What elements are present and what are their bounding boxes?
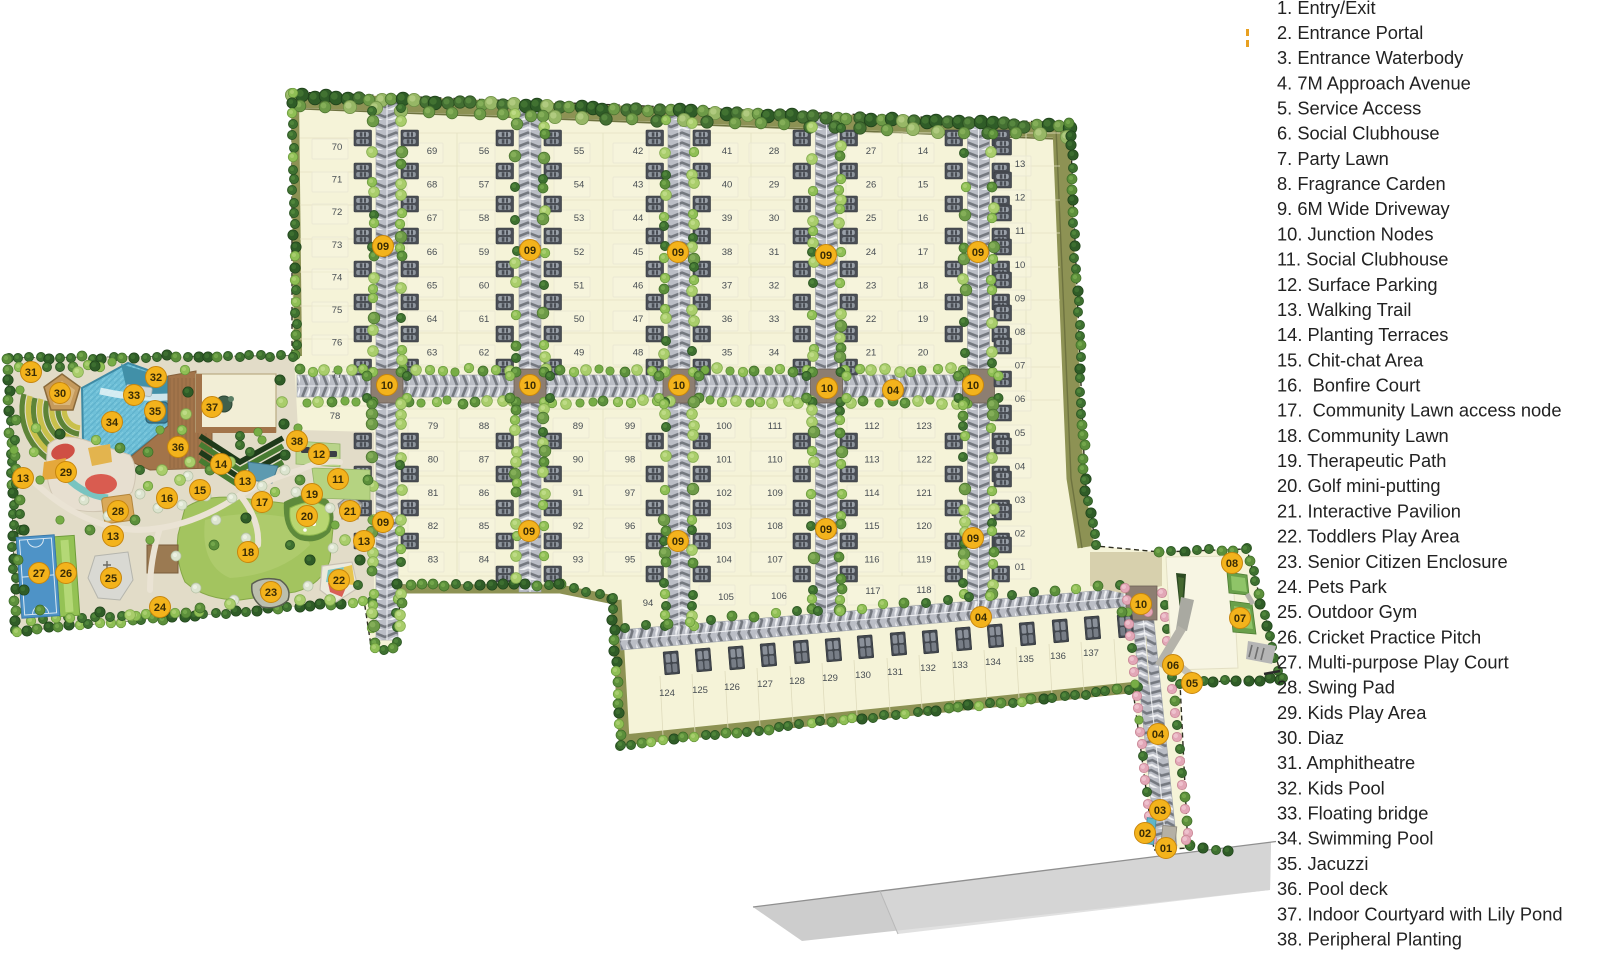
svg-text:27: 27 — [33, 568, 45, 580]
svg-text:11: 11 — [332, 474, 344, 486]
svg-text:10: 10 — [673, 380, 685, 392]
svg-text:129: 129 — [822, 673, 838, 684]
svg-text:72: 72 — [332, 207, 343, 218]
svg-text:15. Chit-chat Area: 15. Chit-chat Area — [1277, 349, 1424, 370]
svg-text:12: 12 — [1015, 193, 1026, 204]
svg-text:80: 80 — [428, 454, 439, 465]
svg-text:34: 34 — [106, 417, 119, 429]
svg-text:1. Entry/Exit: 1. Entry/Exit — [1277, 0, 1376, 18]
svg-text:39: 39 — [722, 213, 733, 224]
svg-text:27. Multi-purpose Play Court: 27. Multi-purpose Play Court — [1277, 652, 1509, 673]
svg-text:109: 109 — [767, 488, 783, 499]
svg-text:18: 18 — [242, 547, 254, 559]
svg-text:24: 24 — [154, 602, 167, 614]
svg-text:8. Fragrance Carden: 8. Fragrance Carden — [1277, 173, 1446, 194]
svg-text:18: 18 — [918, 280, 929, 291]
svg-text:38: 38 — [722, 247, 733, 258]
svg-text:23: 23 — [866, 280, 877, 291]
svg-text:130: 130 — [855, 670, 871, 681]
svg-text:36: 36 — [722, 314, 733, 325]
svg-text:18. Community Lawn: 18. Community Lawn — [1277, 425, 1449, 446]
svg-text:119: 119 — [916, 555, 931, 566]
svg-text:47: 47 — [633, 314, 644, 325]
svg-text:127: 127 — [757, 679, 773, 690]
svg-text:20: 20 — [918, 348, 929, 359]
svg-text:09: 09 — [672, 536, 684, 548]
svg-text:51: 51 — [574, 280, 585, 291]
svg-text:125: 125 — [692, 685, 708, 696]
svg-text:10: 10 — [1015, 260, 1026, 271]
svg-text:13: 13 — [1015, 159, 1026, 170]
svg-text:14: 14 — [215, 459, 228, 471]
svg-text:6. Social Clubhouse: 6. Social Clubhouse — [1277, 123, 1440, 144]
svg-text:79: 79 — [428, 421, 439, 432]
svg-text:2. Entrance Portal: 2. Entrance Portal — [1277, 22, 1423, 43]
svg-text:103: 103 — [716, 521, 732, 532]
svg-text:20. Golf mini-putting: 20. Golf mini-putting — [1277, 475, 1441, 496]
svg-text:114: 114 — [864, 488, 879, 499]
svg-text:65: 65 — [427, 280, 438, 291]
svg-text:87: 87 — [479, 454, 490, 465]
svg-text:133: 133 — [952, 660, 968, 671]
svg-text:86: 86 — [479, 488, 490, 499]
svg-text:4. 7M Approach Avenue: 4. 7M Approach Avenue — [1277, 72, 1471, 93]
svg-text:26: 26 — [866, 180, 877, 191]
svg-text:34. Swimming Pool: 34. Swimming Pool — [1277, 828, 1433, 849]
svg-text:30: 30 — [54, 388, 66, 400]
svg-text:132: 132 — [920, 663, 936, 674]
svg-text:08: 08 — [1226, 558, 1238, 570]
svg-text:128: 128 — [789, 676, 805, 687]
svg-text:17: 17 — [918, 247, 929, 258]
svg-text:12: 12 — [313, 449, 325, 461]
svg-text:76: 76 — [332, 338, 343, 349]
svg-text:33: 33 — [128, 390, 140, 402]
svg-text:97: 97 — [625, 488, 636, 499]
svg-text:32: 32 — [150, 372, 162, 384]
svg-text:15: 15 — [194, 485, 206, 497]
svg-text:49: 49 — [574, 348, 585, 359]
svg-text:37: 37 — [206, 402, 218, 414]
svg-text:101: 101 — [716, 454, 732, 465]
svg-text:81: 81 — [428, 488, 439, 499]
svg-text:63: 63 — [427, 348, 438, 359]
svg-text:24. Pets Park: 24. Pets Park — [1277, 576, 1388, 597]
svg-text:09: 09 — [523, 526, 535, 538]
svg-text:92: 92 — [573, 521, 584, 532]
svg-text:57: 57 — [479, 180, 490, 191]
svg-text:45: 45 — [633, 247, 644, 258]
svg-text:61: 61 — [479, 314, 490, 325]
svg-text:41: 41 — [722, 146, 733, 157]
svg-text:36: 36 — [172, 442, 184, 454]
svg-text:112: 112 — [864, 421, 879, 432]
svg-text:110: 110 — [767, 454, 782, 465]
svg-text:58: 58 — [479, 213, 490, 224]
svg-text:121: 121 — [916, 488, 932, 499]
svg-text:71: 71 — [332, 175, 343, 186]
svg-text:16: 16 — [918, 213, 929, 224]
svg-text:113: 113 — [864, 454, 879, 465]
svg-text:24: 24 — [866, 247, 877, 258]
svg-text:42: 42 — [633, 146, 644, 157]
svg-text:08: 08 — [1015, 327, 1026, 338]
svg-text:32. Kids Pool: 32. Kids Pool — [1277, 777, 1385, 798]
svg-text:16: 16 — [161, 493, 173, 505]
svg-text:21. Interactive Pavilion: 21. Interactive Pavilion — [1277, 500, 1461, 521]
svg-text:35: 35 — [722, 348, 733, 359]
svg-text:09: 09 — [524, 245, 536, 257]
svg-text:124: 124 — [659, 688, 675, 699]
svg-text:29: 29 — [60, 467, 72, 479]
svg-text:83: 83 — [428, 555, 439, 566]
svg-text:135: 135 — [1018, 654, 1034, 665]
svg-text:23: 23 — [265, 587, 277, 599]
svg-text:68: 68 — [427, 180, 438, 191]
svg-text:17: 17 — [256, 497, 268, 509]
svg-text:137: 137 — [1083, 648, 1099, 659]
svg-text:09: 09 — [967, 533, 979, 545]
svg-text:11. Social Clubhouse: 11. Social Clubhouse — [1277, 249, 1448, 270]
svg-text:118: 118 — [916, 585, 931, 596]
svg-text:31: 31 — [25, 367, 37, 379]
svg-text:28. Swing Pad: 28. Swing Pad — [1277, 677, 1395, 698]
svg-text:88: 88 — [479, 421, 490, 432]
svg-text:105: 105 — [718, 592, 734, 603]
svg-text:38. Peripheral Planting: 38. Peripheral Planting — [1277, 929, 1462, 950]
svg-text:94: 94 — [643, 598, 654, 609]
svg-text:19. Therapeutic Path: 19. Therapeutic Path — [1277, 450, 1446, 471]
svg-text:78: 78 — [330, 411, 341, 422]
svg-text:99: 99 — [625, 421, 636, 432]
svg-text:09: 09 — [972, 247, 984, 259]
svg-text:10: 10 — [967, 380, 979, 392]
svg-text:106: 106 — [771, 591, 787, 602]
svg-text:40: 40 — [722, 180, 733, 191]
svg-text:131: 131 — [887, 667, 903, 678]
svg-text:104: 104 — [716, 555, 732, 566]
svg-text:55: 55 — [574, 146, 585, 157]
svg-text:85: 85 — [479, 521, 490, 532]
svg-text:05: 05 — [1015, 428, 1026, 439]
svg-text:04: 04 — [975, 612, 988, 624]
svg-text:07: 07 — [1234, 613, 1246, 625]
svg-text:84: 84 — [479, 555, 490, 566]
svg-text:56: 56 — [479, 146, 490, 157]
svg-text:107: 107 — [767, 555, 783, 566]
svg-text:74: 74 — [332, 272, 343, 283]
svg-text:13: 13 — [239, 476, 251, 488]
svg-text:123: 123 — [916, 421, 932, 432]
svg-text:14. Planting Terraces: 14. Planting Terraces — [1277, 324, 1448, 345]
svg-text:19: 19 — [918, 314, 929, 325]
svg-text:25: 25 — [105, 573, 117, 585]
svg-text:22: 22 — [866, 314, 877, 325]
svg-text:35. Jacuzzi: 35. Jacuzzi — [1277, 853, 1368, 874]
svg-text:03: 03 — [1015, 495, 1026, 506]
svg-text:29. Kids Play Area: 29. Kids Play Area — [1277, 702, 1427, 723]
svg-text:25: 25 — [866, 213, 877, 224]
svg-text:7. Party Lawn: 7. Party Lawn — [1277, 148, 1389, 169]
svg-text:02: 02 — [1139, 828, 1151, 840]
svg-text:01: 01 — [1160, 843, 1172, 855]
svg-text:13: 13 — [17, 473, 29, 485]
svg-text:117: 117 — [865, 586, 880, 597]
svg-text:32: 32 — [769, 280, 780, 291]
svg-text:05: 05 — [1186, 678, 1198, 690]
svg-text:115: 115 — [864, 521, 879, 532]
svg-text:16. Bonfire Court: 16. Bonfire Court — [1277, 375, 1420, 396]
svg-text:67: 67 — [427, 213, 438, 224]
svg-text:70: 70 — [332, 142, 343, 153]
svg-text:21: 21 — [866, 348, 877, 359]
svg-text:5. Service Access: 5. Service Access — [1277, 98, 1421, 119]
svg-text:91: 91 — [573, 488, 584, 499]
svg-text:89: 89 — [573, 421, 584, 432]
svg-text:19: 19 — [306, 489, 318, 501]
svg-text:62: 62 — [479, 348, 490, 359]
svg-text:30: 30 — [769, 213, 780, 224]
svg-text:60: 60 — [479, 280, 490, 291]
svg-text:34: 34 — [769, 348, 780, 359]
svg-text:50: 50 — [574, 314, 585, 325]
svg-text:100: 100 — [716, 421, 732, 432]
svg-text:17. Community Lawn access nod: 17. Community Lawn access node — [1277, 400, 1562, 421]
svg-text:33: 33 — [769, 314, 780, 325]
svg-text:122: 122 — [916, 454, 932, 465]
svg-text:09: 09 — [377, 517, 389, 529]
svg-text:12. Surface Parking: 12. Surface Parking — [1277, 274, 1438, 295]
svg-text:31. Amphitheatre: 31. Amphitheatre — [1277, 752, 1415, 773]
svg-text:04: 04 — [1015, 461, 1026, 472]
svg-text:13: 13 — [107, 531, 119, 543]
svg-text:04: 04 — [1152, 729, 1165, 741]
svg-text:95: 95 — [625, 555, 636, 566]
svg-text:66: 66 — [427, 247, 438, 258]
svg-text:120: 120 — [916, 521, 932, 532]
svg-text:136: 136 — [1050, 651, 1066, 662]
svg-text:75: 75 — [332, 305, 343, 316]
svg-text:09: 09 — [672, 247, 684, 259]
svg-text:03: 03 — [1154, 805, 1166, 817]
svg-text:52: 52 — [574, 247, 585, 258]
svg-text:111: 111 — [768, 421, 782, 432]
svg-text:10. Junction Nodes: 10. Junction Nodes — [1277, 223, 1434, 244]
svg-text:10: 10 — [381, 380, 393, 392]
svg-text:36. Pool deck: 36. Pool deck — [1277, 878, 1389, 899]
svg-text:73: 73 — [332, 240, 343, 251]
svg-text:09: 09 — [820, 524, 832, 536]
svg-text:54: 54 — [574, 180, 585, 191]
svg-text:102: 102 — [716, 488, 732, 499]
svg-text:07: 07 — [1015, 361, 1026, 372]
svg-text:13: 13 — [358, 536, 370, 548]
svg-text:134: 134 — [985, 657, 1001, 668]
svg-text:98: 98 — [625, 454, 636, 465]
svg-text:43: 43 — [633, 180, 644, 191]
svg-text:82: 82 — [428, 521, 439, 532]
svg-text:26: 26 — [60, 568, 72, 580]
svg-text:3. Entrance Waterbody: 3. Entrance Waterbody — [1277, 47, 1464, 68]
svg-text:28: 28 — [112, 506, 124, 518]
svg-text:59: 59 — [479, 247, 490, 258]
svg-text:93: 93 — [573, 555, 584, 566]
svg-text:23. Senior Citizen Enclosure: 23. Senior Citizen Enclosure — [1277, 551, 1508, 572]
svg-text:33. Floating bridge: 33. Floating bridge — [1277, 803, 1428, 824]
svg-text:26. Cricket Practice Pitch: 26. Cricket Practice Pitch — [1277, 626, 1481, 647]
svg-text:9. 6M Wide Driveway: 9. 6M Wide Driveway — [1277, 198, 1451, 219]
svg-text:90: 90 — [573, 454, 584, 465]
svg-text:10: 10 — [821, 383, 833, 395]
svg-text:96: 96 — [625, 521, 636, 532]
svg-text:35: 35 — [149, 406, 161, 418]
svg-text:22: 22 — [333, 575, 345, 587]
svg-text:31: 31 — [769, 247, 780, 258]
svg-text:09: 09 — [377, 241, 389, 253]
svg-text:09: 09 — [1015, 293, 1026, 304]
svg-text:64: 64 — [427, 314, 438, 325]
svg-text:37. Indoor Courtyard with Lily: 37. Indoor Courtyard with Lily Pond — [1277, 903, 1563, 924]
svg-text:15: 15 — [918, 180, 929, 191]
svg-text:13. Walking Trail: 13. Walking Trail — [1277, 299, 1411, 320]
svg-text:27: 27 — [866, 146, 877, 157]
svg-text:48: 48 — [633, 348, 644, 359]
svg-text:10: 10 — [524, 380, 536, 392]
svg-text:14: 14 — [918, 146, 929, 157]
svg-text:29: 29 — [769, 180, 780, 191]
svg-text:25. Outdoor Gym: 25. Outdoor Gym — [1277, 601, 1417, 622]
svg-text:22. Toddlers Play Area: 22. Toddlers Play Area — [1277, 526, 1460, 547]
svg-text:108: 108 — [767, 521, 783, 532]
svg-text:44: 44 — [633, 213, 644, 224]
svg-text:01: 01 — [1015, 562, 1026, 573]
svg-text:09: 09 — [820, 250, 832, 262]
svg-text:126: 126 — [724, 682, 740, 693]
svg-text:69: 69 — [427, 146, 438, 157]
svg-text:11: 11 — [1015, 226, 1025, 237]
svg-text:28: 28 — [769, 146, 780, 157]
svg-text:06: 06 — [1167, 660, 1179, 672]
svg-text:21: 21 — [344, 506, 356, 518]
svg-text:53: 53 — [574, 213, 585, 224]
svg-text:10: 10 — [1135, 599, 1147, 611]
svg-text:37: 37 — [722, 280, 733, 291]
svg-text:38: 38 — [291, 436, 303, 448]
svg-text:02: 02 — [1015, 529, 1026, 540]
svg-text:46: 46 — [633, 280, 644, 291]
svg-text:116: 116 — [864, 555, 879, 566]
svg-text:30. Diaz: 30. Diaz — [1277, 727, 1344, 748]
svg-text:06: 06 — [1015, 394, 1026, 405]
svg-text:04: 04 — [887, 385, 900, 397]
svg-text:20: 20 — [301, 511, 313, 523]
